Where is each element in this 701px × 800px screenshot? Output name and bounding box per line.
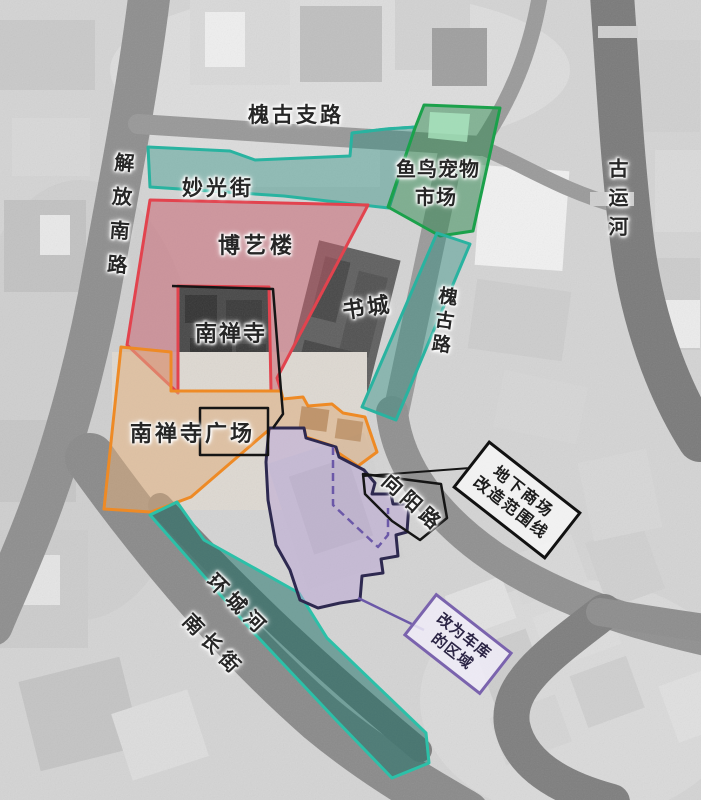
label-nanchansi-plaza: 南禅寺广场 — [130, 416, 255, 448]
label-miaoguang-street: 妙光街 — [182, 172, 254, 202]
label-fish-bird-market-line2: 市场 — [415, 181, 457, 210]
planning-map: 槐古支路 解放南路 妙光街 鱼鸟宠物 市场 古运河 博艺楼 南禅寺 书城 槐古路… — [0, 0, 701, 800]
plaza-planter — [335, 418, 364, 441]
label-nanchansi: 南禅寺 — [195, 316, 267, 348]
label-canal-guyunhe: 古运河 — [603, 158, 632, 245]
label-fish-bird-market-line1: 鱼鸟宠物 — [396, 153, 480, 182]
satellite-map-canvas — [0, 0, 701, 800]
label-road-huaigu-branch: 槐古支路 — [248, 99, 344, 129]
region-market-lightpatch — [428, 112, 470, 142]
label-boyilou: 博艺楼 — [218, 228, 296, 260]
